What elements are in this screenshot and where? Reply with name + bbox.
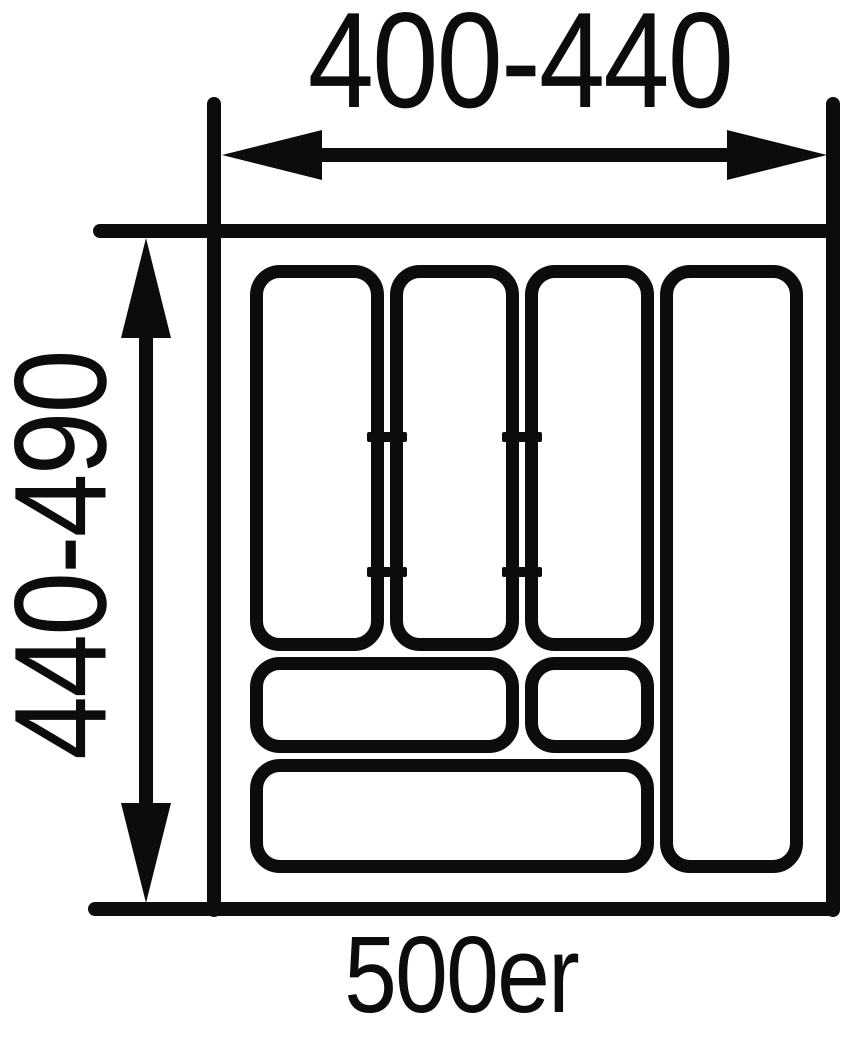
divider-joint-notch: [502, 432, 542, 442]
height-arrow-top-head-icon: [121, 238, 171, 338]
tray-right-edge-line: [826, 97, 840, 917]
compartment-middle-wide: [250, 657, 519, 753]
height-arrow-bottom-head-icon: [121, 803, 171, 903]
divider-joint-notch: [367, 432, 407, 442]
compartment-middle-small: [525, 657, 654, 753]
compartment-right-tall: [660, 265, 803, 873]
width-arrow-shaft: [300, 148, 730, 162]
compartment-top-3: [525, 265, 654, 651]
compartment-top-2: [390, 265, 519, 651]
compartment-bottom-wide: [250, 759, 654, 873]
size-label: 500er: [331, 921, 592, 1030]
divider-joint-notch: [367, 567, 407, 577]
tray-bottom-edge-line: [88, 902, 840, 916]
width-arrow-right-head-icon: [727, 130, 827, 180]
cutlery-tray-dimension-diagram: 400-440 440-490 500er: [0, 0, 854, 1048]
width-dimension-label: 400-440: [293, 0, 748, 128]
compartment-top-1: [250, 265, 384, 651]
divider-joint-notch: [502, 567, 542, 577]
tray-top-edge-line: [93, 224, 840, 238]
width-arrow-left-head-icon: [222, 130, 322, 180]
tray-left-edge-line: [207, 97, 221, 917]
height-arrow-shaft: [139, 310, 153, 810]
height-dimension-label: 440-490: [0, 337, 126, 775]
